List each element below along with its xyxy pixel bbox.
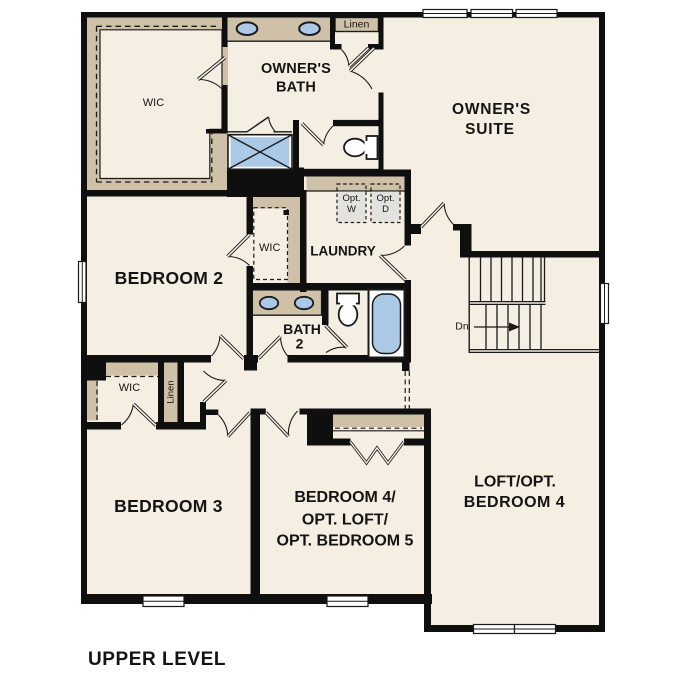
- svg-text:Linen: Linen: [165, 380, 176, 403]
- svg-text:Linen: Linen: [344, 18, 370, 30]
- svg-text:BEDROOM 2: BEDROOM 2: [115, 268, 224, 288]
- svg-text:OPT. LOFT/: OPT. LOFT/: [302, 512, 389, 529]
- svg-text:LAUNDRY: LAUNDRY: [310, 244, 376, 259]
- svg-text:OWNER'S: OWNER'S: [261, 61, 331, 77]
- svg-text:UPPER LEVEL: UPPER LEVEL: [88, 649, 226, 670]
- svg-text:W: W: [347, 204, 356, 215]
- svg-text:2: 2: [296, 336, 304, 352]
- svg-text:WIC: WIC: [259, 242, 280, 254]
- svg-text:Dn: Dn: [455, 321, 469, 333]
- svg-text:WIC: WIC: [143, 97, 164, 109]
- svg-text:BEDROOM 3: BEDROOM 3: [114, 496, 223, 516]
- svg-text:WIC: WIC: [119, 382, 140, 394]
- svg-text:LOFT/OPT.: LOFT/OPT.: [474, 474, 556, 491]
- svg-text:Opt.: Opt.: [377, 193, 395, 204]
- svg-text:OPT. BEDROOM 5: OPT. BEDROOM 5: [277, 533, 414, 550]
- svg-text:BEDROOM 4: BEDROOM 4: [464, 494, 565, 511]
- svg-text:SUITE: SUITE: [465, 121, 515, 138]
- svg-text:BEDROOM 4/: BEDROOM 4/: [294, 489, 396, 506]
- svg-text:Opt.: Opt.: [343, 193, 361, 204]
- svg-text:BATH: BATH: [276, 80, 316, 96]
- svg-text:D: D: [382, 204, 389, 215]
- svg-text:OWNER'S: OWNER'S: [452, 101, 531, 118]
